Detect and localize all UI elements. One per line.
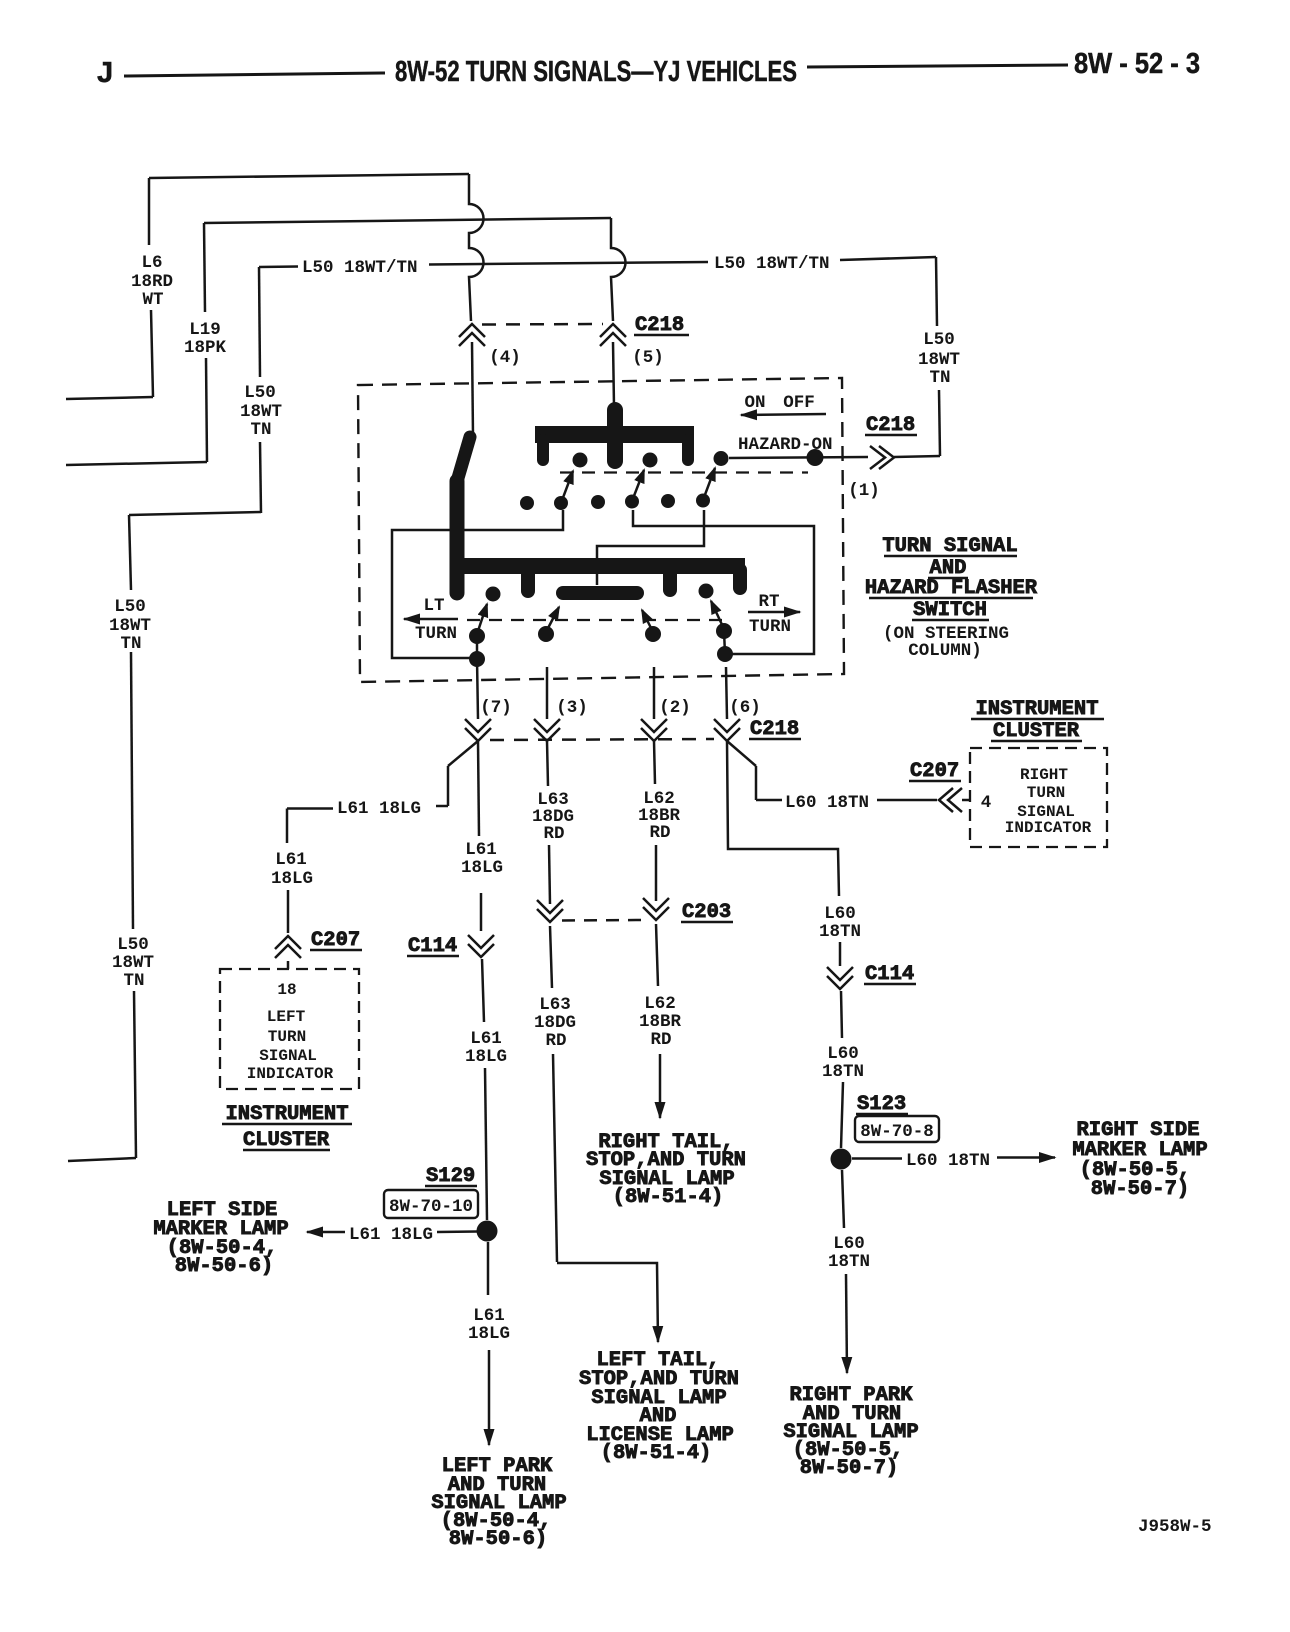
svg-text:INDICATOR: INDICATOR xyxy=(1005,819,1092,837)
svg-text:L60: L60 xyxy=(833,1234,865,1254)
svg-text:HAZARD-ON: HAZARD-ON xyxy=(738,435,833,455)
svg-text:TURN: TURN xyxy=(1027,784,1065,802)
svg-text:RD: RD xyxy=(543,824,564,844)
svg-text:OFF: OFF xyxy=(783,393,815,413)
svg-text:L50 18WT/TN: L50 18WT/TN xyxy=(714,254,830,274)
svg-text:TN: TN xyxy=(929,368,950,388)
svg-text:L19: L19 xyxy=(189,320,221,340)
svg-text:C218: C218 xyxy=(635,314,684,337)
svg-text:(6): (6) xyxy=(729,698,761,718)
svg-text:18TN: 18TN xyxy=(822,1062,864,1082)
svg-text:(3): (3) xyxy=(556,698,588,718)
svg-text:(8W-51-4): (8W-51-4) xyxy=(601,1442,712,1465)
svg-text:RT: RT xyxy=(758,592,779,612)
svg-text:18WT: 18WT xyxy=(918,350,960,370)
svg-text:TURN: TURN xyxy=(749,617,791,637)
svg-text:18WT: 18WT xyxy=(112,953,154,973)
svg-text:8W-50-7): 8W-50-7) xyxy=(800,1457,898,1480)
svg-text:RIGHT: RIGHT xyxy=(1020,766,1068,784)
svg-text:S123: S123 xyxy=(857,1093,906,1116)
svg-text:RD: RD xyxy=(545,1031,566,1051)
svg-text:TN: TN xyxy=(250,420,271,440)
svg-text:18WT: 18WT xyxy=(240,402,282,422)
svg-text:RD: RD xyxy=(649,823,670,843)
svg-text:(5): (5) xyxy=(632,348,664,368)
svg-text:TURN: TURN xyxy=(415,624,457,644)
svg-text:C203: C203 xyxy=(682,901,731,924)
svg-text:LEFT: LEFT xyxy=(267,1008,306,1026)
svg-text:18LG: 18LG xyxy=(271,869,313,889)
svg-text:J958W-5: J958W-5 xyxy=(1138,1517,1212,1537)
svg-text:ON: ON xyxy=(744,393,765,413)
svg-text:L60: L60 xyxy=(827,1044,859,1064)
svg-text:8W - 52 - 3: 8W - 52 - 3 xyxy=(1074,48,1200,80)
svg-text:RD: RD xyxy=(650,1030,671,1050)
svg-text:L6: L6 xyxy=(141,253,162,273)
svg-text:18TN: 18TN xyxy=(819,922,861,942)
svg-text:18LG: 18LG xyxy=(465,1047,507,1067)
svg-text:(2): (2) xyxy=(659,698,691,718)
svg-text:L61: L61 xyxy=(473,1306,505,1326)
svg-text:8W-50-6): 8W-50-6) xyxy=(175,1255,273,1278)
svg-text:L61 18LG: L61 18LG xyxy=(337,799,421,819)
svg-text:L50: L50 xyxy=(117,935,149,955)
svg-text:18PK: 18PK xyxy=(184,338,227,358)
svg-text:8W-50-6): 8W-50-6) xyxy=(449,1528,547,1551)
svg-text:CLUSTER: CLUSTER xyxy=(993,720,1080,743)
svg-text:C207: C207 xyxy=(311,929,360,952)
svg-text:L63: L63 xyxy=(539,995,571,1015)
svg-text:J: J xyxy=(97,57,113,89)
svg-text:8W-70-10: 8W-70-10 xyxy=(389,1197,473,1217)
svg-text:L50: L50 xyxy=(923,330,955,350)
svg-text:(7): (7) xyxy=(480,698,512,718)
svg-text:18: 18 xyxy=(277,981,296,999)
svg-text:L50: L50 xyxy=(244,383,276,403)
svg-text:18LG: 18LG xyxy=(468,1324,510,1344)
svg-text:C218: C218 xyxy=(866,414,915,437)
svg-text:INSTRUMENT: INSTRUMENT xyxy=(225,1103,348,1126)
svg-text:C207: C207 xyxy=(910,760,959,783)
svg-text:C114: C114 xyxy=(865,963,914,986)
svg-text:L61: L61 xyxy=(275,850,307,870)
svg-text:C218: C218 xyxy=(750,718,799,741)
svg-text:L60: L60 xyxy=(824,904,856,924)
svg-text:18RD: 18RD xyxy=(131,272,173,292)
svg-text:18TN: 18TN xyxy=(828,1252,870,1272)
svg-text:(4): (4) xyxy=(489,348,521,368)
svg-text:8W-70-8: 8W-70-8 xyxy=(860,1122,934,1142)
svg-text:L61: L61 xyxy=(470,1029,502,1049)
svg-text:C114: C114 xyxy=(408,935,457,958)
svg-text:SIGNAL: SIGNAL xyxy=(259,1047,317,1065)
svg-text:8W-50-7): 8W-50-7) xyxy=(1091,1178,1189,1201)
svg-text:L61: L61 xyxy=(465,840,497,860)
svg-text:WT: WT xyxy=(142,290,163,310)
svg-text:18DG: 18DG xyxy=(534,1013,576,1033)
svg-text:S129: S129 xyxy=(426,1165,475,1188)
svg-text:TURN: TURN xyxy=(268,1028,306,1046)
svg-text:L62: L62 xyxy=(644,994,676,1014)
svg-text:CLUSTER: CLUSTER xyxy=(243,1129,330,1152)
svg-text:SWITCH: SWITCH xyxy=(913,599,987,622)
svg-text:8W-52 TURN SIGNALS—YJ VEHICLES: 8W-52 TURN SIGNALS—YJ VEHICLES xyxy=(395,56,797,88)
svg-text:HAZARD FLASHER: HAZARD FLASHER xyxy=(865,577,1038,600)
svg-text:18LG: 18LG xyxy=(461,858,503,878)
svg-text:L50 18WT/TN: L50 18WT/TN xyxy=(302,258,418,278)
svg-text:4: 4 xyxy=(981,793,992,813)
svg-text:INDICATOR: INDICATOR xyxy=(247,1065,334,1083)
svg-text:18BR: 18BR xyxy=(639,1012,682,1032)
svg-text:L60 18TN: L60 18TN xyxy=(906,1151,990,1171)
svg-text:INSTRUMENT: INSTRUMENT xyxy=(975,698,1098,721)
svg-text:TN: TN xyxy=(123,971,144,991)
svg-text:(1): (1) xyxy=(848,481,880,501)
svg-text:LT: LT xyxy=(423,596,444,616)
svg-text:L61 18LG: L61 18LG xyxy=(349,1225,433,1245)
svg-text:L50: L50 xyxy=(114,597,146,617)
svg-text:COLUMN): COLUMN) xyxy=(908,641,982,661)
svg-text:TN: TN xyxy=(120,634,141,654)
svg-text:TURN SIGNAL: TURN SIGNAL xyxy=(882,535,1017,558)
svg-text:(8W-51-4): (8W-51-4) xyxy=(613,1186,724,1209)
svg-text:18WT: 18WT xyxy=(109,616,151,636)
svg-text:L60 18TN: L60 18TN xyxy=(785,793,869,813)
